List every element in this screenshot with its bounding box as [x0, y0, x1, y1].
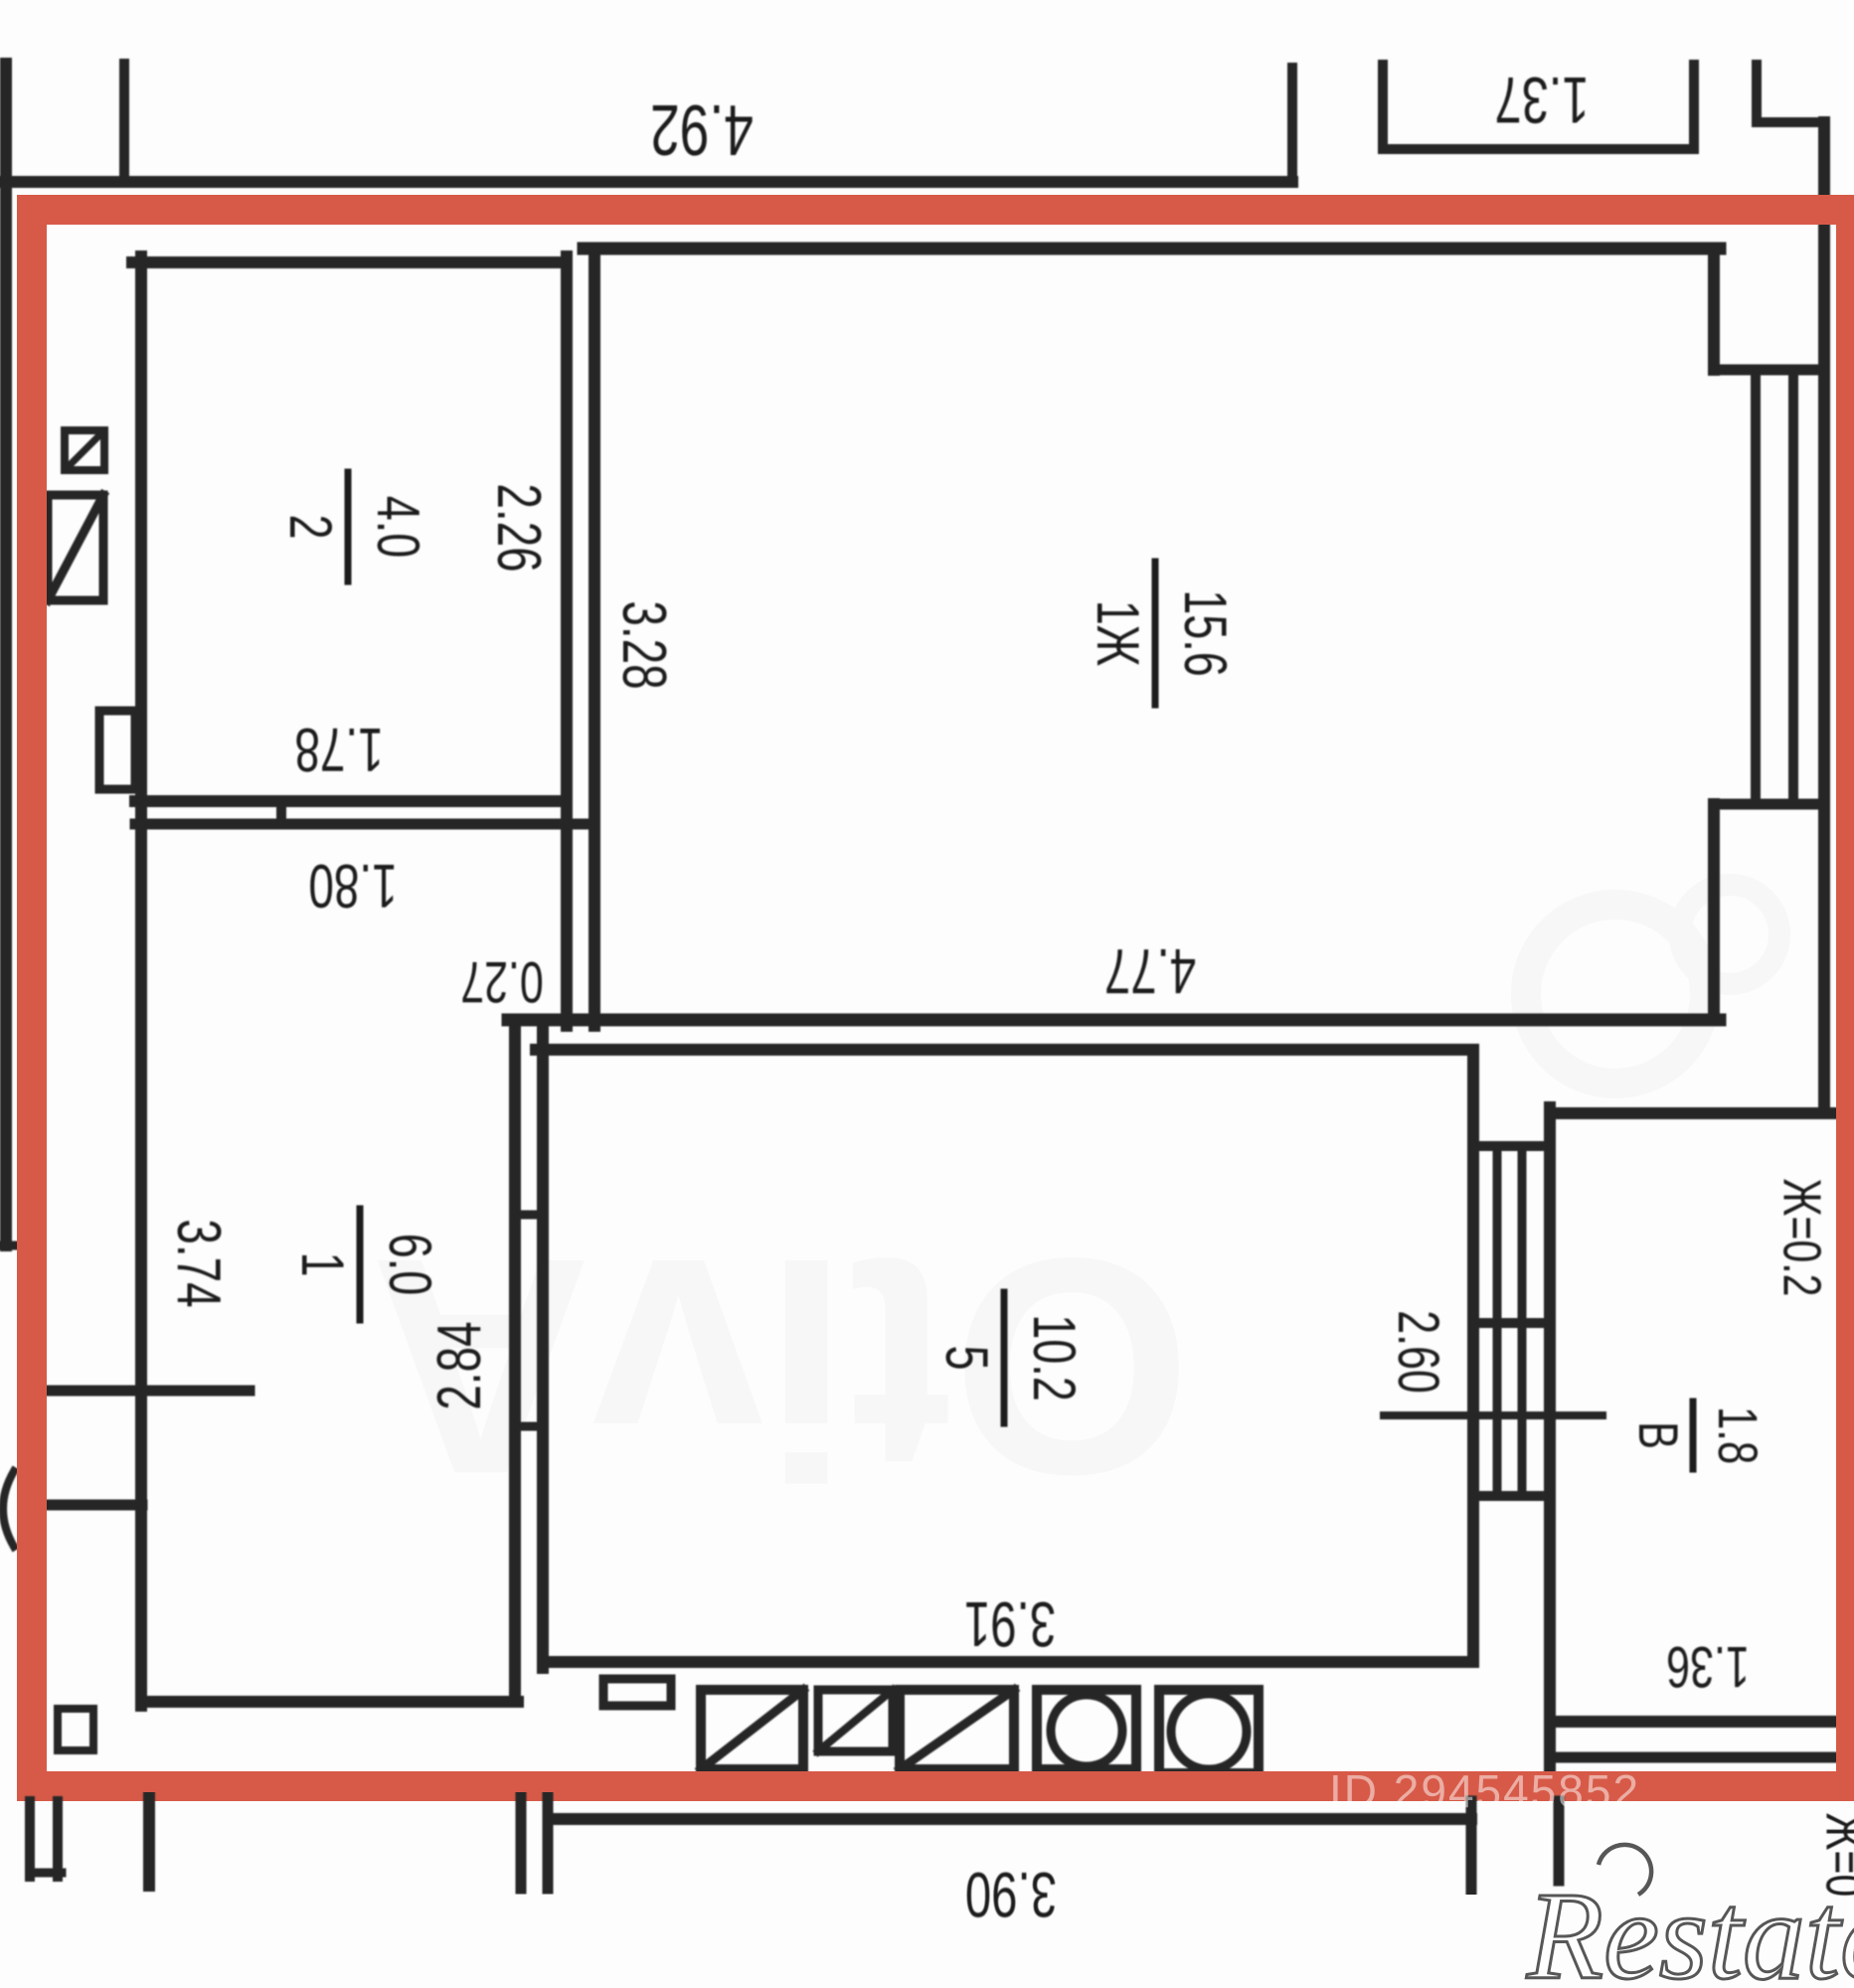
svg-text:1.80: 1.80 [308, 851, 397, 919]
svg-text:3.28: 3.28 [609, 600, 678, 689]
svg-text:5: 5 [932, 1345, 999, 1370]
svg-text:3.74: 3.74 [164, 1219, 233, 1307]
svg-text:10.2: 10.2 [1020, 1314, 1087, 1402]
svg-text:Ж=0.2: Ж=0.2 [1771, 1179, 1831, 1297]
svg-text:В: В [1627, 1421, 1689, 1449]
svg-text:1: 1 [288, 1251, 355, 1276]
svg-text:2.60: 2.60 [1387, 1310, 1451, 1394]
svg-text:3.91: 3.91 [964, 1588, 1056, 1660]
svg-text:4.77: 4.77 [1104, 935, 1196, 1007]
svg-text:1.36: 1.36 [1666, 1635, 1750, 1700]
svg-text:4.92: 4.92 [650, 89, 754, 169]
svg-text:3.90: 3.90 [965, 1859, 1057, 1930]
svg-text:1.37: 1.37 [1494, 63, 1589, 136]
svg-text:0.27: 0.27 [460, 950, 544, 1015]
svg-text:6.0: 6.0 [376, 1234, 442, 1296]
svg-text:1Ж: 1Ж [1084, 600, 1150, 667]
svg-text:2.84: 2.84 [424, 1321, 493, 1409]
svg-text:4.0: 4.0 [364, 496, 430, 559]
svg-text:1.8: 1.8 [1707, 1407, 1769, 1464]
svg-text:2: 2 [276, 514, 343, 539]
svg-text:2.26: 2.26 [484, 483, 553, 572]
svg-text:ID 294545852: ID 294545852 [1329, 1765, 1640, 1817]
svg-text:Restate: Restate [1526, 1868, 1854, 1988]
svg-text:1.78: 1.78 [294, 715, 383, 783]
svg-text:15.6: 15.6 [1171, 589, 1238, 677]
